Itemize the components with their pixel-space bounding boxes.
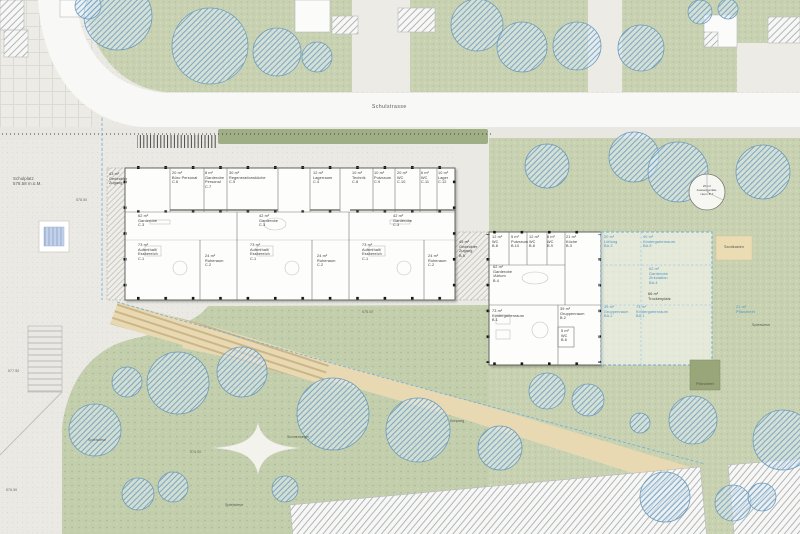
lawn-label-east: Spielwiese xyxy=(752,323,770,327)
plaza-label: Schulplatz 578.58 m.ü.M. xyxy=(13,176,42,187)
room-label-b10: 5 m² Putzraum B.10 xyxy=(511,235,528,249)
room-label-c4: 12 m² Lagerraum C.4 xyxy=(313,171,332,185)
room-label-b4: 62 m² Garderobe /Atrium B.4 xyxy=(493,265,512,284)
building-b xyxy=(487,231,602,366)
room-label-aufenthalt-1: 73 m² Aufenthalt/ Essbereich C.1 xyxy=(138,243,158,262)
stairs xyxy=(28,326,62,392)
ext-label-pflanzbeet: 21 m² Pflanzbeet xyxy=(736,305,755,314)
room-label-garderobe-2: 42 m² Garderobe C.3 xyxy=(259,214,278,228)
room-label-c10: 20 m² WC C.10 xyxy=(397,171,407,185)
level-marker: 578.50 xyxy=(76,198,87,202)
ext-label-trockenplatz: 66 m² Trockenplatz xyxy=(648,292,671,301)
planting-bed-label: Pflanzbeet xyxy=(688,382,722,386)
boundary-line xyxy=(0,392,62,455)
ext-label-ba5: 40 m² Kindergartenraum BA.5 xyxy=(643,235,675,249)
room-label-ruheraum-1: 24 m² Ruheraum C.2 xyxy=(205,254,224,268)
canopy-a-label: 43 m² Gedeckter Zugang xyxy=(109,172,127,186)
room-label-b8a: 12 m² WC B.8 xyxy=(492,235,502,249)
street-name: Schulstrasse xyxy=(372,104,407,110)
room-label-b3: 21 m² Küche B.3 xyxy=(566,235,577,249)
room-label-c12: 10 m² Lager C.12 xyxy=(438,171,448,185)
sandbox-label: Sandkasten xyxy=(716,245,752,249)
room-label-b8b: 12 m² WC B.8 xyxy=(529,235,539,249)
bike-rack-strip xyxy=(137,135,218,148)
room-label-b9: 8 m² WC B.9 xyxy=(547,235,555,249)
room-label-c11: 6 m² WC C.11 xyxy=(421,171,429,185)
room-label-b6: 5 m² WC B.6 xyxy=(561,329,569,343)
gravel-path-label: Kiesweg xyxy=(450,419,464,423)
level-marker: 576.50 xyxy=(6,488,17,492)
canopy-b-label: 45 m² Gedeckter Zugang B.5 xyxy=(459,240,477,259)
shade-sail-label: Sonnensegel xyxy=(287,435,309,439)
ext-label-ba3: 20 m² Lüftung BA.3 xyxy=(604,235,617,249)
fountain xyxy=(39,221,69,252)
room-label-garderobe-1: 62 m² Garderobe C.3 xyxy=(138,214,157,228)
ext-label-ba2: 39 m² Gruppenraum BA.2 xyxy=(604,305,629,319)
ext-label-ba4: 62 m² Garderobe Zirkulation BA.4 xyxy=(649,267,668,286)
lawn-label-south: Spielwiese xyxy=(225,503,243,507)
equipment-room-label: 20 m² Aussengeräte- raum B.7 xyxy=(692,185,722,196)
room-label-garderobe-3: 42 m² Garderobe C.3 xyxy=(393,214,412,228)
level-marker: 577.50 xyxy=(8,369,19,373)
room-label-ruheraum-2: 24 m² Ruheraum C.2 xyxy=(317,254,336,268)
level-marker: 576.00 xyxy=(190,450,201,454)
ext-label-ba1: 73 m² Kindergartenraum BA.1 xyxy=(636,305,668,319)
room-label-c5: 30 m² Regenerationsküche C.5 xyxy=(229,171,266,185)
building-a xyxy=(124,166,456,300)
room-label-aufenthalt-3: 73 m² Aufenthalt/ Essbereich C.1 xyxy=(362,243,382,262)
room-label-c6: 20 m² Büro Personal C.6 xyxy=(172,171,197,185)
hedge xyxy=(218,129,488,144)
level-marker: 578.00 xyxy=(362,310,373,314)
lawn-label-west: Spielwiese xyxy=(88,438,106,442)
site-plan: Schulstrasse Schulplatz 578.58 m.ü.M. 57… xyxy=(0,0,800,534)
room-label-c7: 8 m² Garderobe Personal C.7 xyxy=(205,171,224,190)
driveway xyxy=(737,43,800,92)
site-graphics xyxy=(0,0,800,534)
room-label-ruheraum-3: 24 m² Ruheraum C.2 xyxy=(428,254,447,268)
room-label-b1: 73 m² Kindergartenraum B.1 xyxy=(492,309,524,323)
room-label-aufenthalt-2: 73 m² Aufenthalt/ Essbereich C.1 xyxy=(250,243,270,262)
room-label-c9: 10 m² Putzraum C.9 xyxy=(374,171,391,185)
room-label-b2: 39 m² Gruppenraum B.2 xyxy=(560,307,585,321)
room-label-c8: 10 m² Technik C.8 xyxy=(352,171,366,185)
